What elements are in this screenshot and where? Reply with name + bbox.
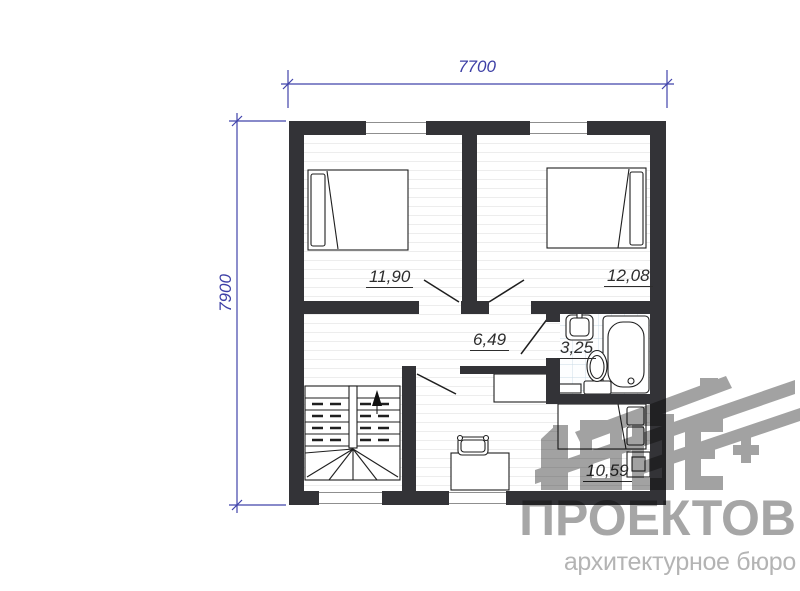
- desk-icon: [451, 453, 509, 490]
- room-area-label-hall: 6,49: [470, 331, 509, 351]
- bed-icon: [308, 170, 408, 250]
- dimension-height-label: 7900: [216, 257, 236, 329]
- floor-plan-drawing: [0, 0, 800, 591]
- dimension-line-height: [229, 113, 286, 513]
- room-area-label-bedroom-right: 12,08: [604, 267, 653, 287]
- stairs-icon: [305, 386, 400, 480]
- dimension-width-label: 7700: [441, 57, 513, 77]
- chair-icon: [458, 436, 489, 456]
- bed-icon: [558, 404, 646, 449]
- sink-icon: [566, 311, 593, 340]
- wardrobe-icon: [494, 374, 548, 402]
- room-area-label-study-bedroom: 10,59: [583, 462, 632, 482]
- room-area-label-bathroom: 3,25: [557, 339, 596, 359]
- bed-icon: [547, 168, 646, 248]
- floor-plan-sheet: 7700 7900 11,90 12,08 6,49 3,25 10,59: [0, 0, 800, 591]
- room-area-label-bedroom-left: 11,90: [366, 268, 413, 288]
